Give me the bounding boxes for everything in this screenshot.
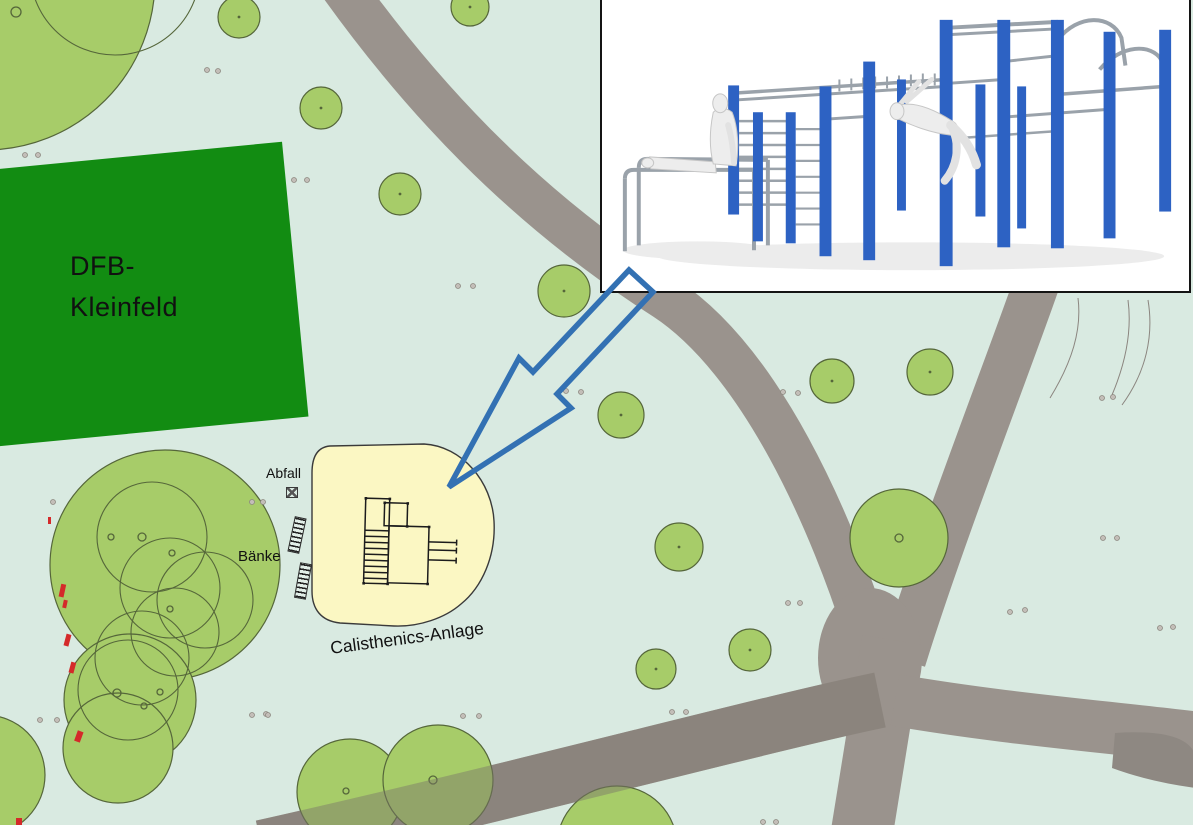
park-site-plan: DFB- Kleinfeld Abfall Bänke Calisthenics…	[0, 0, 1193, 825]
athlete-figure-lsit	[642, 94, 738, 173]
trash-icon	[286, 487, 298, 498]
equipment-render	[602, 0, 1191, 291]
abfall-label: Abfall	[266, 465, 301, 481]
baenke-label: Bänke	[238, 548, 281, 565]
equipment-inset	[600, 0, 1191, 293]
blue-posts	[728, 20, 1171, 266]
calisthenics-area-outline	[312, 444, 494, 626]
